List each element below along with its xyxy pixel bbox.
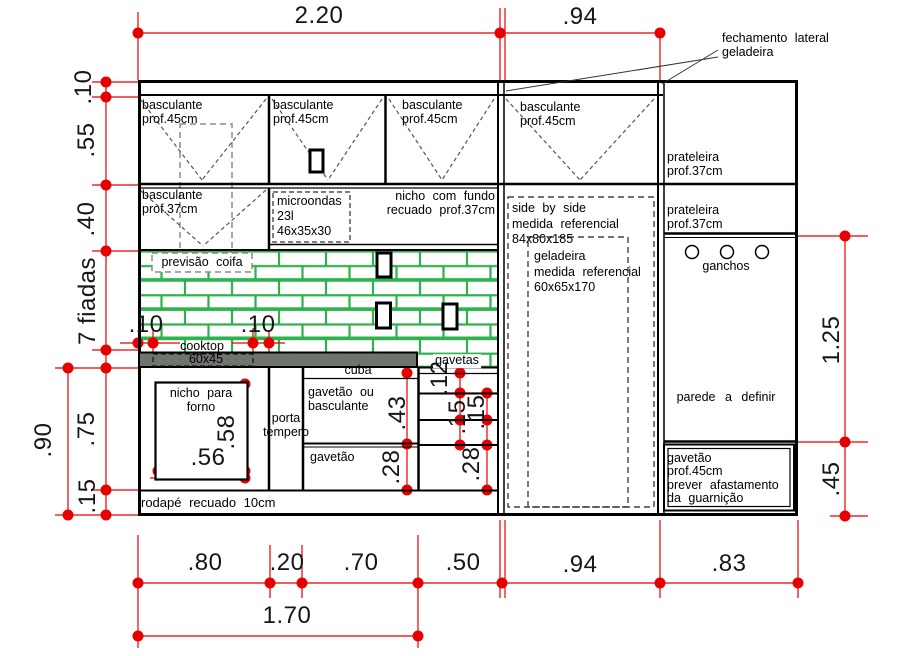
niche-label: nicho com fundo recuado prof.37cm [355,190,495,217]
hook-icons [686,246,769,259]
countertop [139,353,417,368]
right-drawer-label: gavetão prof.45cm prever afastamento da … [667,452,779,506]
dim-top-fridge-bay: .94 [563,3,598,31]
dim-left-10: .10 [70,70,98,105]
door-37-label: basculanteprof.37cm [142,189,202,216]
hood-note: previsão coifa [161,256,242,270]
dim-left-40: .40 [73,202,101,237]
door-45-label-1: basculanteprof.45cm [142,99,202,126]
hooks-label: ganchos [702,260,749,274]
fridge-note: geladeira medida referencial 60x65x170 [534,249,641,296]
dim-stack-2: .15 [463,395,491,430]
closure-note-line1: fechamento lateral [722,32,829,46]
kitchen-elevation-drawing: 2.20 .94 fechamento lateral geladeira ba… [0,0,911,656]
big-drawer-top-label: gavetão oubasculante [308,386,374,413]
dim-top-run: 2.20 [295,2,344,30]
oven-niche-label: nicho paraforno [160,387,242,414]
door-45-label-3: basculanteprof.45cm [402,99,462,126]
dim-drawer-28: .28 [378,450,406,485]
toe-kick-label: rodapé recuado 10cm [141,496,275,510]
fridge-side-closure-note: fechamento lateral geladeira [722,32,829,59]
dim-clearance-left: .10 [129,311,164,339]
dim-bottom-total: 1.70 [263,602,312,630]
dim-clearance-right: .10 [241,311,276,339]
dim-drawer-43: .43 [384,396,412,431]
dim-left-15: .15 [74,479,102,514]
dim-right-45: .45 [818,462,846,497]
dim-stack-0: .12 [426,361,454,396]
dim-bottom-20: .20 [270,549,305,577]
dim-right-125: 1.25 [818,316,846,365]
shelf-label-mid: prateleiraprof.37cm [667,204,723,231]
dim-left-90: .90 [30,423,58,458]
door-45-label-4: basculanteprof.45cm [520,101,580,128]
dim-oven-height: .58 [213,415,241,450]
spice-door-label: portatempero [258,412,314,439]
dim-bottom-94: .94 [563,551,598,579]
shelf-label-top: prateleiraprof.37cm [667,151,723,178]
dim-left-55: .55 [73,123,101,158]
cooktop-size-label: 60x45 [189,353,223,367]
microwave-label: microondas 23l 46x35x30 [277,194,342,239]
big-drawer-bottom-label: gavetão [310,451,354,465]
dim-tile-rows: 7 fiadas [74,257,102,345]
dim-bottom-50: .50 [446,549,481,577]
dim-stack-3: .28 [458,447,486,482]
dim-left-75: .75 [73,412,101,447]
door-45-label-2: basculanteprof.45cm [273,99,333,126]
leader-lines [506,50,718,91]
dim-bottom-80: .80 [188,549,223,577]
side-by-side-note: side by side medida referencial 84x80x18… [512,201,619,248]
dim-bottom-83: .83 [712,550,747,578]
wall-note: parede a definir [677,391,776,405]
dim-bottom-70: .70 [344,549,379,577]
closure-note-line2: geladeira [722,46,829,60]
sink-label: cuba [344,364,371,378]
